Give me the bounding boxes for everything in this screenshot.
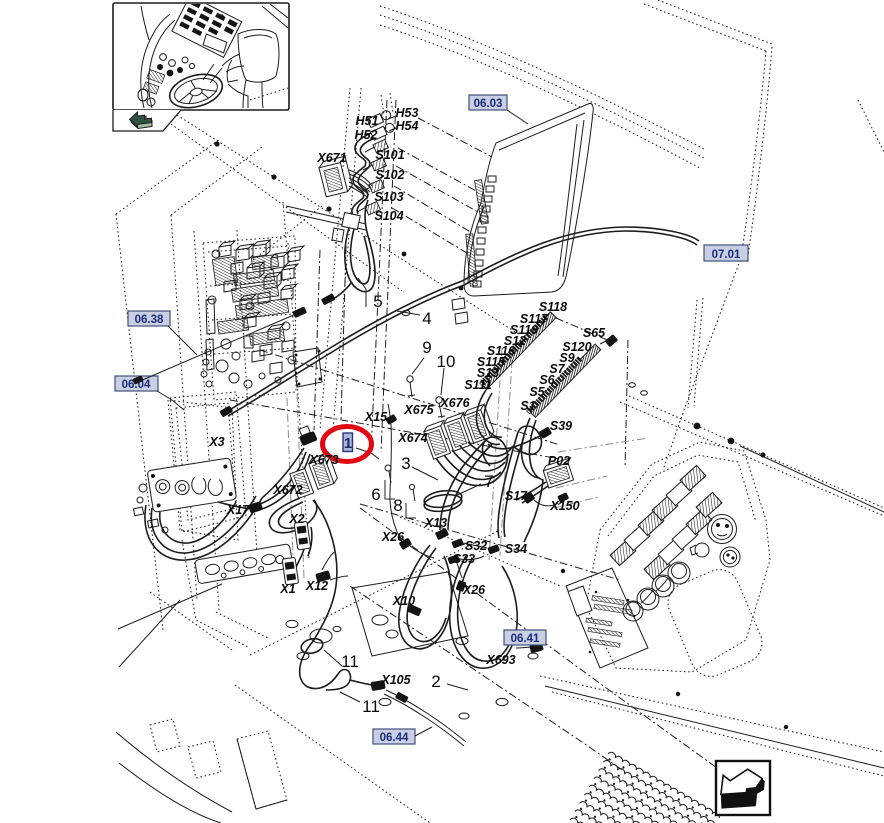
svg-text:X10: X10 (392, 594, 415, 608)
svg-text:X13: X13 (424, 516, 447, 530)
svg-text:S65: S65 (583, 326, 606, 340)
svg-text:H51: H51 (356, 114, 379, 128)
svg-text:H54: H54 (396, 119, 419, 133)
svg-text:8: 8 (393, 496, 402, 515)
svg-text:X12: X12 (305, 579, 328, 593)
svg-text:S5: S5 (529, 385, 545, 399)
svg-text:P02: P02 (548, 454, 570, 468)
svg-text:06.38: 06.38 (135, 314, 164, 326)
svg-text:S102: S102 (375, 168, 404, 182)
svg-text:S33: S33 (453, 552, 475, 566)
svg-text:X674: X674 (397, 431, 427, 445)
svg-text:H53: H53 (396, 106, 419, 120)
svg-text:S103: S103 (374, 190, 403, 204)
svg-text:2: 2 (431, 672, 440, 691)
svg-text:X26: X26 (381, 530, 405, 544)
svg-text:3: 3 (401, 454, 410, 473)
svg-text:X676: X676 (439, 396, 470, 410)
svg-text:06.41: 06.41 (511, 633, 540, 645)
svg-text:X105: X105 (380, 673, 411, 687)
svg-text:6: 6 (371, 485, 380, 504)
svg-text:1: 1 (344, 435, 352, 452)
svg-text:06.44: 06.44 (380, 732, 409, 744)
svg-text:X1: X1 (279, 582, 295, 596)
svg-text:X672: X672 (272, 483, 302, 497)
svg-text:X671: X671 (316, 151, 346, 165)
svg-text:S1: S1 (520, 399, 535, 413)
svg-text:S101: S101 (375, 148, 404, 162)
svg-text:S39: S39 (550, 419, 572, 433)
svg-text:4: 4 (422, 309, 431, 328)
svg-text:X17: X17 (226, 503, 250, 517)
svg-text:X15: X15 (364, 410, 388, 424)
svg-text:X2: X2 (288, 512, 304, 526)
svg-text:11: 11 (362, 697, 380, 716)
svg-text:S32: S32 (465, 539, 487, 553)
svg-text:X3: X3 (208, 435, 224, 449)
svg-text:7: 7 (484, 472, 493, 491)
svg-text:10: 10 (437, 352, 456, 371)
svg-text:X673: X673 (308, 453, 338, 467)
svg-text:H52: H52 (355, 128, 378, 142)
svg-text:06.03: 06.03 (474, 98, 503, 110)
svg-text:X26: X26 (462, 583, 486, 597)
svg-text:S111: S111 (464, 378, 491, 392)
svg-text:X693: X693 (485, 653, 515, 667)
svg-text:11: 11 (341, 652, 359, 671)
svg-text:S17: S17 (505, 489, 528, 503)
svg-text:X150: X150 (549, 499, 579, 513)
svg-text:S34: S34 (505, 542, 527, 556)
svg-text:9: 9 (422, 338, 431, 357)
svg-text:S104: S104 (374, 209, 403, 223)
svg-text:07.01: 07.01 (712, 249, 741, 261)
svg-text:5: 5 (373, 292, 382, 311)
svg-text:X675: X675 (403, 403, 434, 417)
